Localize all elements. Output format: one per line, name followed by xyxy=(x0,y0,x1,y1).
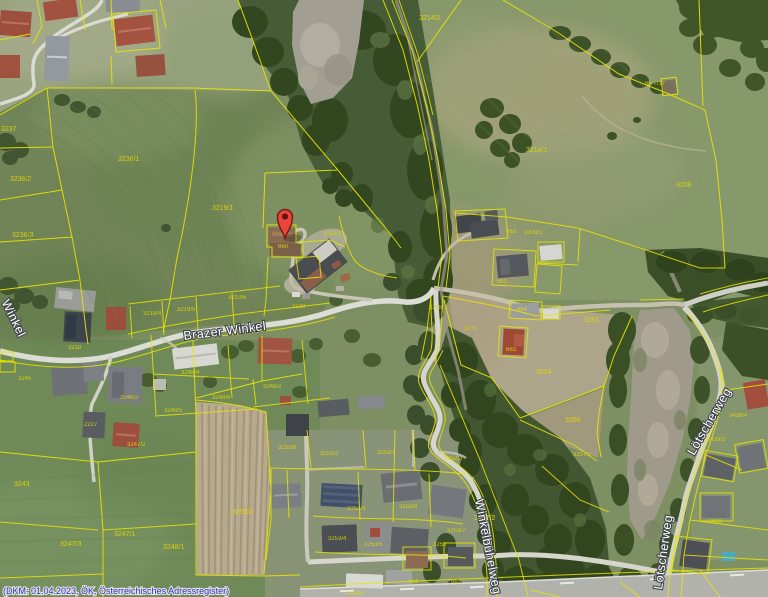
svg-text:3247/3: 3247/3 xyxy=(60,541,82,548)
svg-text:3248/1: 3248/1 xyxy=(163,544,185,551)
svg-text:3253/1: 3253/1 xyxy=(232,509,254,516)
svg-text:3253/8: 3253/8 xyxy=(278,445,297,451)
svg-text:3271: 3271 xyxy=(464,326,478,332)
svg-text:3261: 3261 xyxy=(584,317,600,324)
svg-text:3264/4: 3264/4 xyxy=(346,591,365,597)
svg-text:667: 667 xyxy=(451,579,462,585)
svg-text:3248/2: 3248/2 xyxy=(263,384,282,390)
svg-text:3246/2: 3246/2 xyxy=(120,395,139,401)
svg-text:3253/3: 3253/3 xyxy=(347,506,366,512)
svg-text:(DKM: 01.04.2023, ÖK, Österrei: (DKM: 01.04.2023, ÖK, Österreichisches A… xyxy=(3,586,229,596)
svg-text:661: 661 xyxy=(497,279,508,285)
svg-text:3253/4: 3253/4 xyxy=(328,536,347,542)
svg-text:3252/3: 3252/3 xyxy=(444,456,463,462)
svg-text:3248/5: 3248/5 xyxy=(164,408,183,414)
svg-text:3248/6: 3248/6 xyxy=(212,395,231,401)
svg-text:3439/4: 3439/4 xyxy=(729,413,748,419)
svg-text:3236/1: 3236/1 xyxy=(118,156,140,163)
svg-text:3219/5: 3219/5 xyxy=(177,307,196,313)
svg-text:65 7/17: 65 7/17 xyxy=(645,81,666,87)
svg-text:3439/2: 3439/2 xyxy=(707,437,726,443)
svg-text:3219/6: 3219/6 xyxy=(228,295,247,301)
svg-text:664: 664 xyxy=(408,579,419,585)
svg-text:663: 663 xyxy=(506,347,517,353)
svg-text:3253/2: 3253/2 xyxy=(320,451,339,457)
svg-text:3214/2: 3214/2 xyxy=(419,15,441,22)
svg-text:3252/1: 3252/1 xyxy=(377,450,396,456)
svg-text:3248/4: 3248/4 xyxy=(181,370,200,376)
svg-text:3247/2: 3247/2 xyxy=(127,442,146,448)
svg-text:3257/2: 3257/2 xyxy=(573,452,592,458)
svg-text:3243: 3243 xyxy=(14,481,30,488)
svg-text:3239: 3239 xyxy=(292,304,306,310)
svg-text:3438: 3438 xyxy=(708,519,722,525)
svg-text:3209/1: 3209/1 xyxy=(524,230,543,236)
svg-text:3219/1: 3219/1 xyxy=(323,231,342,237)
svg-text:663: 663 xyxy=(506,229,517,235)
svg-text:660: 660 xyxy=(278,244,289,250)
svg-text:3218: 3218 xyxy=(68,345,82,351)
svg-text:3219/4: 3219/4 xyxy=(143,311,162,317)
svg-text:3254: 3254 xyxy=(536,369,552,376)
svg-text:3253/5: 3253/5 xyxy=(364,542,383,548)
svg-text:3256: 3256 xyxy=(565,417,581,424)
svg-text:664: 664 xyxy=(517,307,528,313)
svg-text:3245: 3245 xyxy=(18,376,32,382)
svg-text:3208: 3208 xyxy=(676,182,692,189)
svg-text:3253/9: 3253/9 xyxy=(399,504,418,510)
svg-text:3253/7: 3253/7 xyxy=(447,528,466,534)
svg-text:3237: 3237 xyxy=(1,126,17,133)
svg-text:3258: 3258 xyxy=(433,542,447,548)
svg-text:2227: 2227 xyxy=(84,422,98,428)
svg-text:3218: 3218 xyxy=(429,305,443,311)
